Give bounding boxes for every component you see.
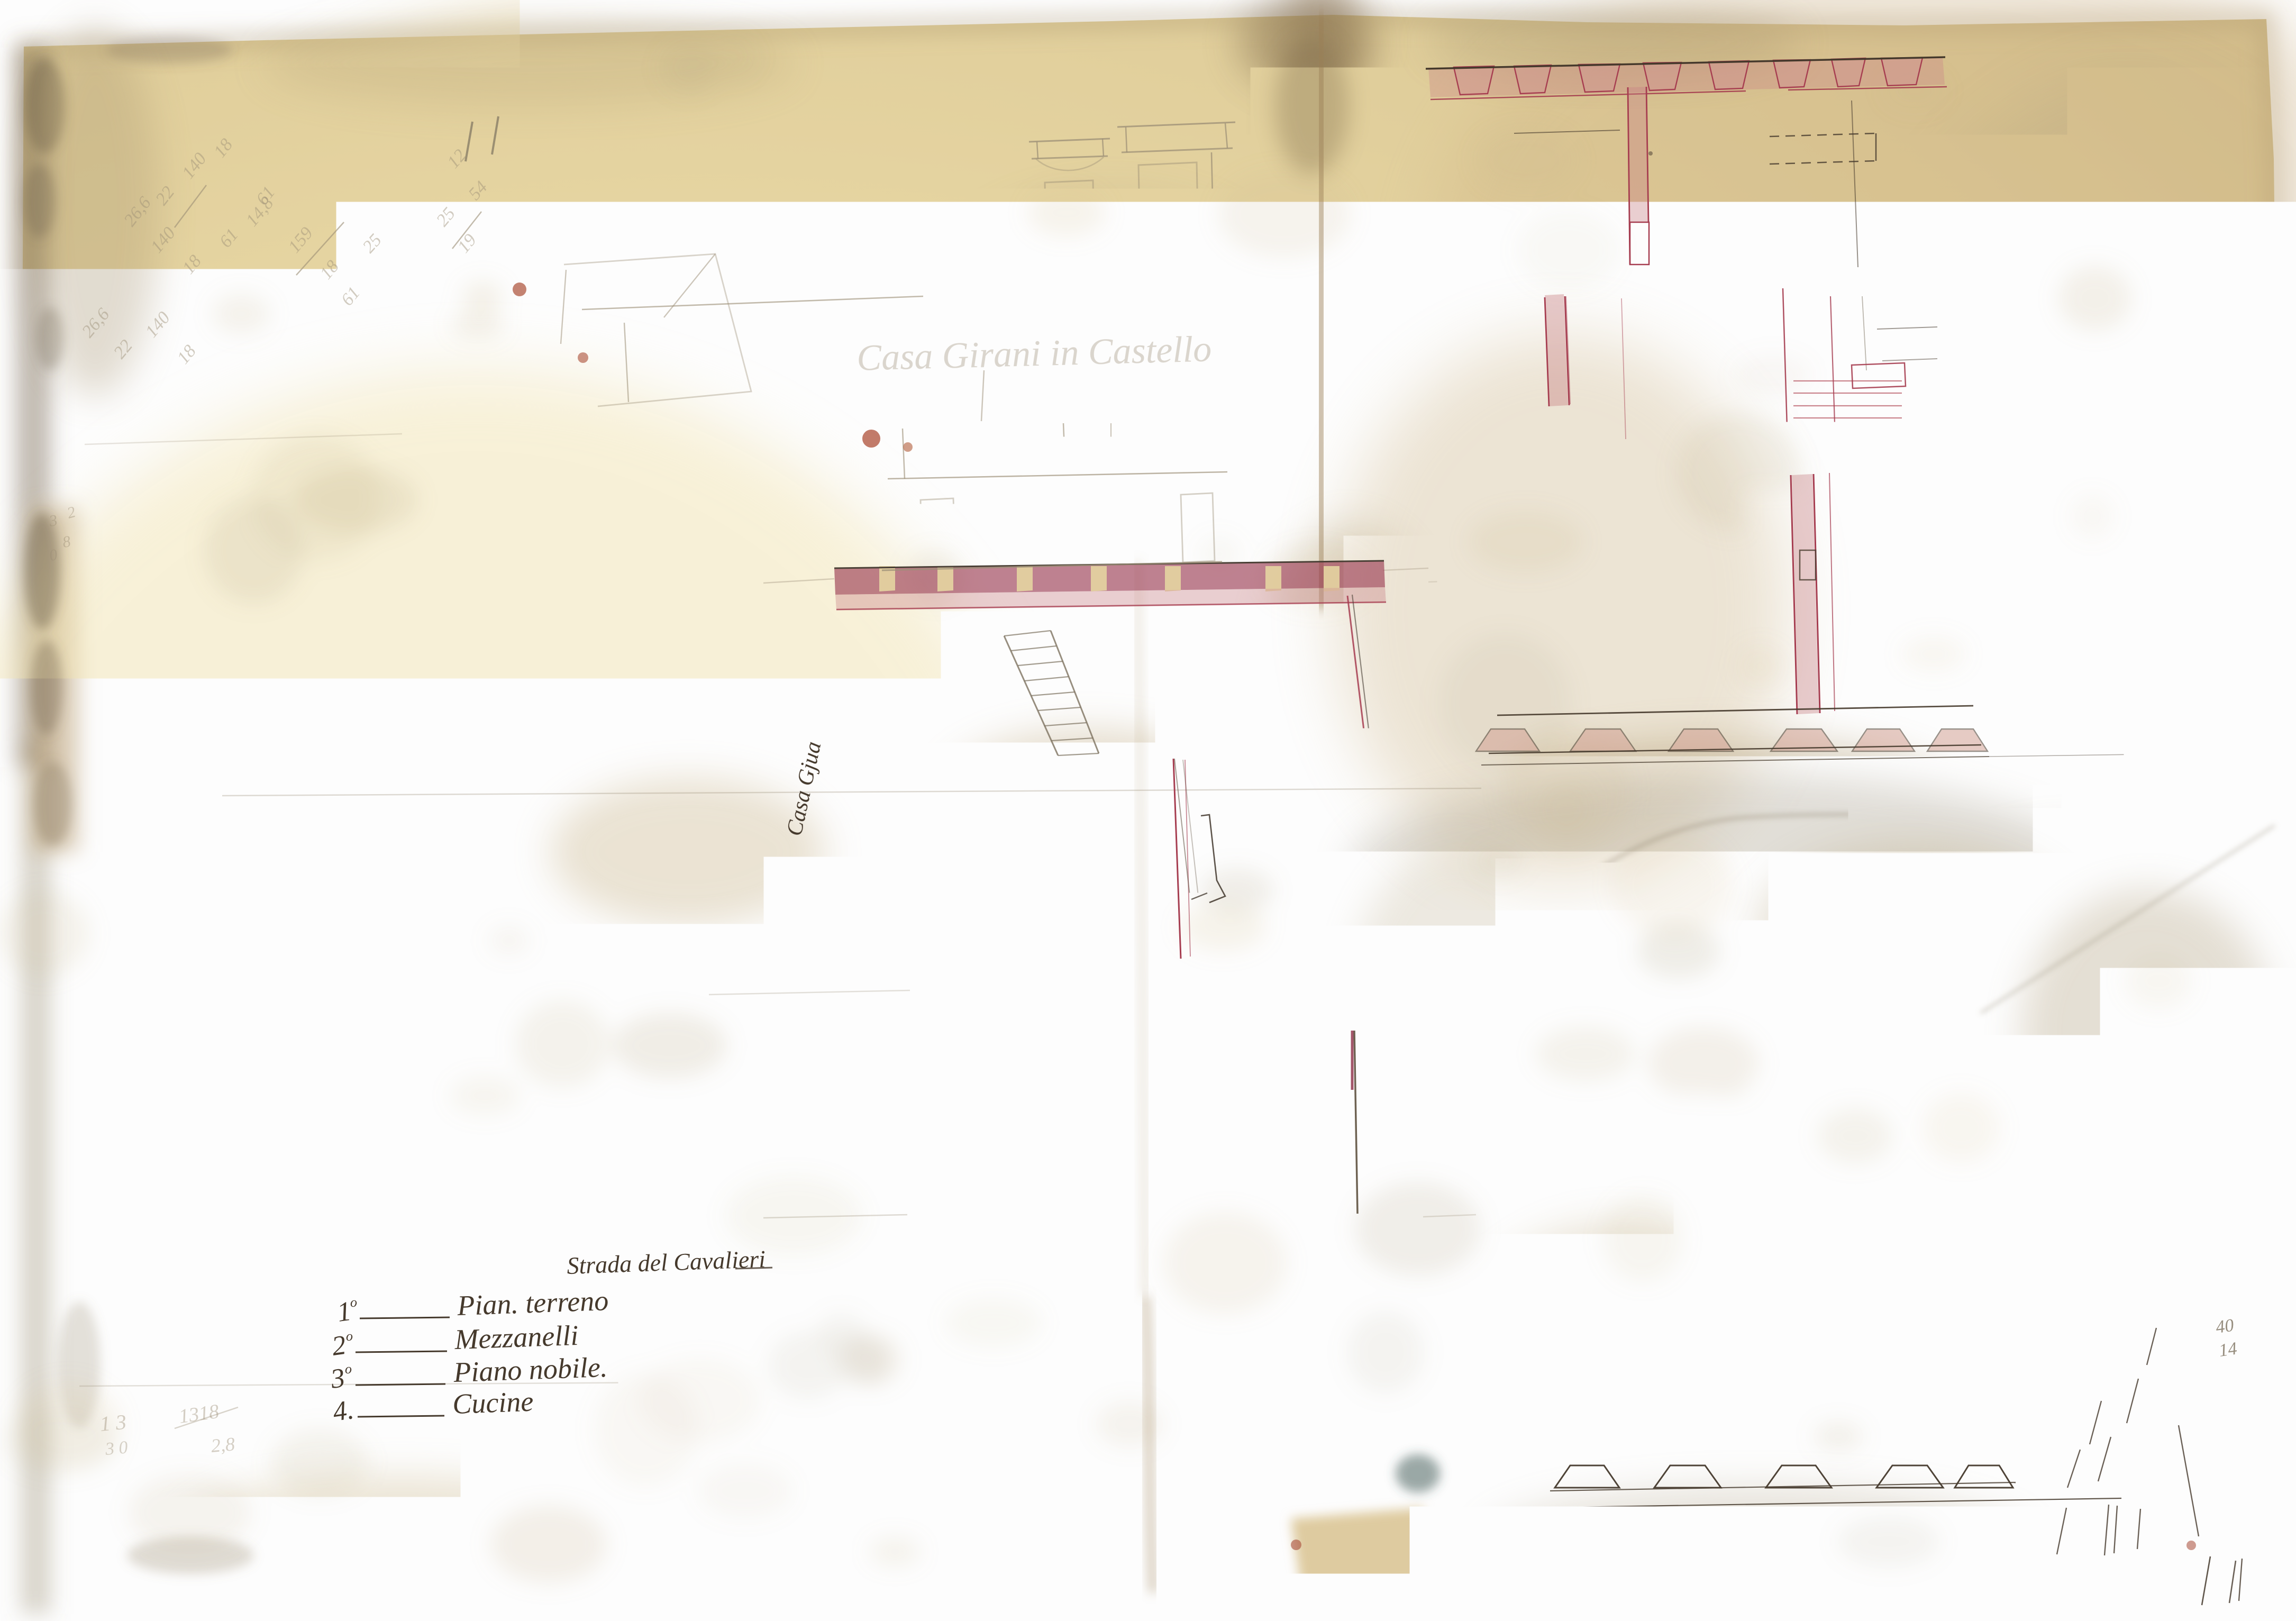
svg-text:o: o	[345, 1361, 352, 1377]
svg-text:2: 2	[887, 1392, 895, 1410]
svg-text:4.: 4.	[1907, 1231, 1928, 1260]
svg-text:5: 5	[1010, 1392, 1018, 1410]
svg-text:40: 40	[2215, 1316, 2235, 1337]
svg-text:0: 0	[805, 1392, 813, 1410]
svg-text:o: o	[350, 1295, 357, 1310]
svg-text:14: 14	[2218, 1339, 2238, 1361]
svg-text:Cucine: Cucine	[452, 1386, 534, 1420]
svg-text:3 0: 3 0	[104, 1437, 129, 1459]
svg-text:3.: 3.	[1241, 1021, 1263, 1051]
svg-text:Mezzanelli: Mezzanelli	[453, 1319, 579, 1355]
svg-text:Piano nobile.: Piano nobile.	[452, 1351, 608, 1388]
svg-text:o: o	[346, 1328, 353, 1344]
svg-text:Pian. terreno: Pian. terreno	[456, 1285, 609, 1322]
svg-text:10.: 10.	[1217, 1351, 1238, 1370]
svg-text:4.: 4.	[331, 1395, 356, 1427]
svg-text:15.: 15.	[1416, 1390, 1437, 1409]
svg-text:4: 4	[969, 1392, 977, 1410]
svg-text:1 3: 1 3	[99, 1410, 127, 1436]
svg-text:scala metrica: scala metrica	[1085, 1387, 1211, 1415]
svg-text:2.: 2.	[604, 1044, 627, 1076]
svg-text:2,8: 2,8	[210, 1433, 235, 1456]
svg-text:3: 3	[927, 1392, 936, 1410]
svg-text:1: 1	[846, 1392, 854, 1410]
